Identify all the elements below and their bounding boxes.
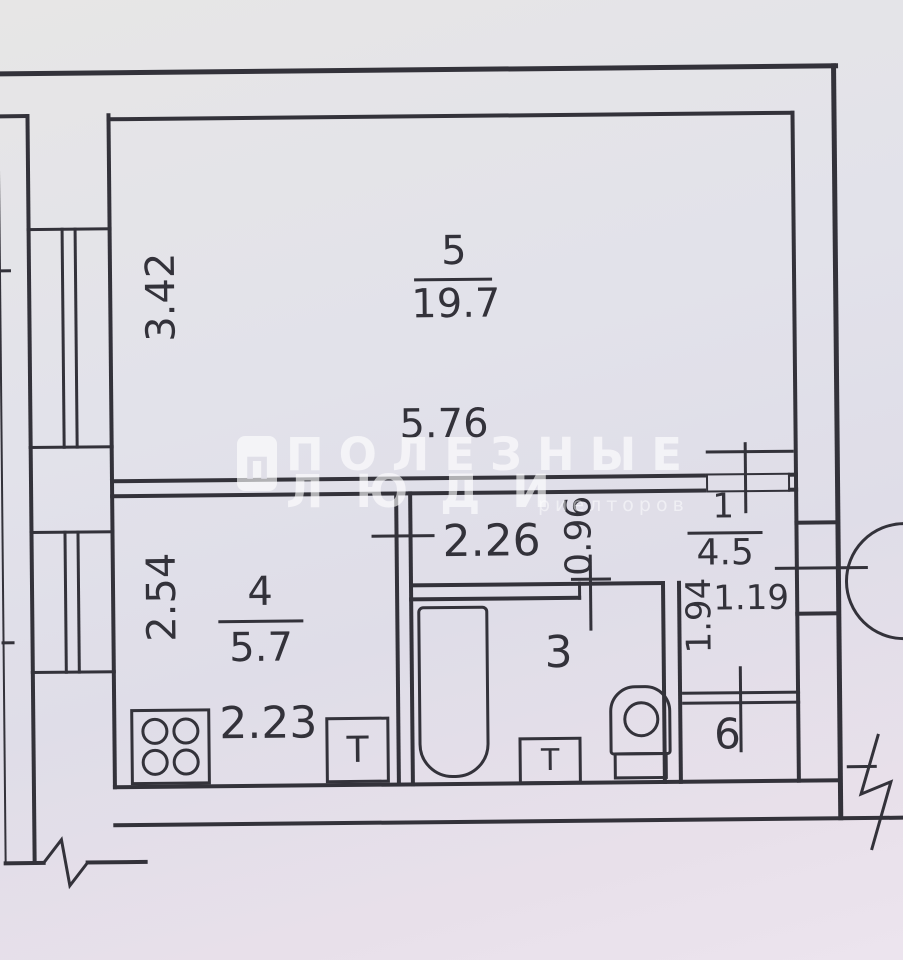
watermark-logo-icon: П	[237, 436, 277, 491]
watermark-logo-letter: П	[244, 455, 269, 491]
floor-plan-scan: T T 5 19.7 4 5.7 1 4.5 3 6 5.76 3.42 2.5…	[0, 0, 903, 960]
watermark-subtext: риелторов	[538, 494, 689, 516]
watermark-layer: П ПОЛЕЗНЫЕ ЛЮДИ риелторов	[0, 0, 903, 960]
